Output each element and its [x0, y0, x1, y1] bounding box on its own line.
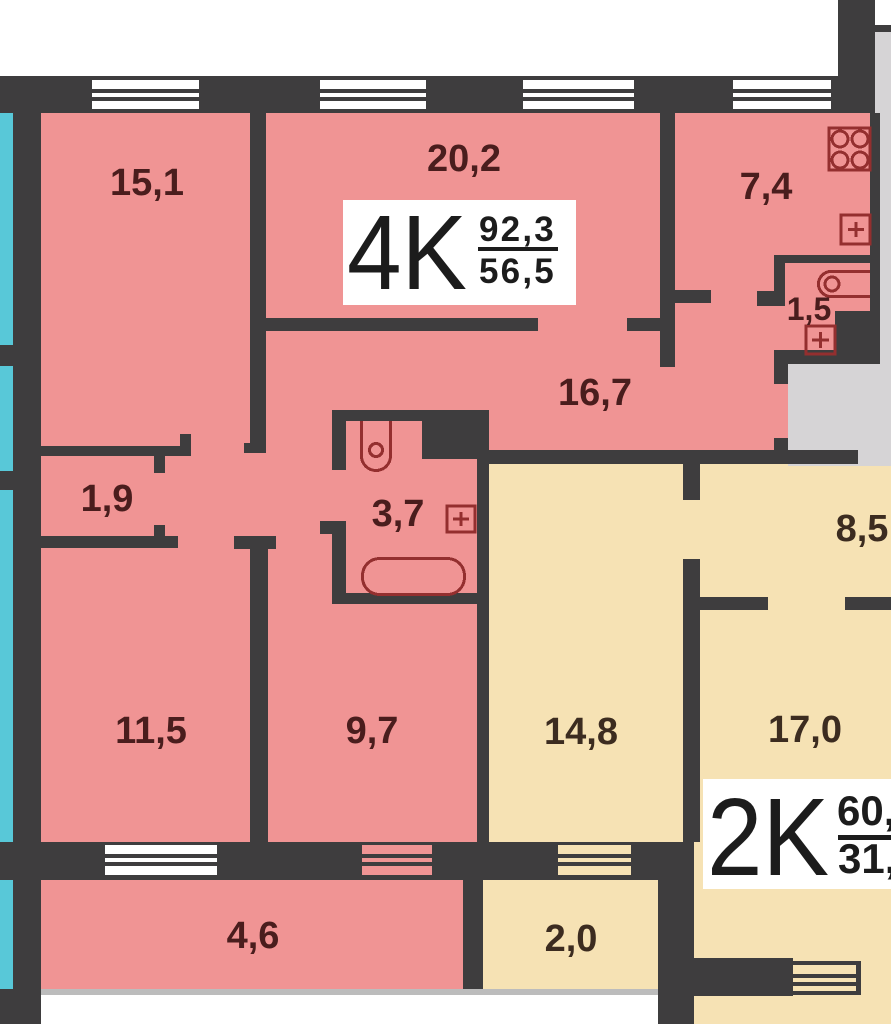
svg-text:4K: 4K: [347, 194, 467, 312]
svg-text:1,5: 1,5: [787, 291, 831, 327]
svg-text:15,1: 15,1: [110, 162, 184, 204]
svg-text:7,4: 7,4: [740, 166, 793, 208]
svg-text:56,5: 56,5: [479, 252, 556, 291]
svg-text:92,3: 92,3: [479, 210, 556, 249]
svg-text:8,5: 8,5: [836, 508, 889, 550]
svg-text:9,7: 9,7: [346, 710, 399, 752]
svg-text:14,8: 14,8: [544, 711, 618, 753]
svg-text:3,7: 3,7: [372, 493, 425, 535]
svg-text:2,0: 2,0: [545, 918, 598, 960]
svg-text:60,: 60,: [837, 787, 891, 834]
svg-text:2K: 2K: [707, 776, 829, 899]
svg-text:16,7: 16,7: [558, 372, 632, 414]
svg-text:20,2: 20,2: [427, 138, 501, 180]
svg-text:17,0: 17,0: [768, 709, 842, 751]
svg-text:1,9: 1,9: [81, 478, 134, 520]
svg-text:4,6: 4,6: [227, 915, 280, 957]
svg-text:31,: 31,: [838, 835, 891, 882]
svg-text:11,5: 11,5: [115, 710, 187, 752]
